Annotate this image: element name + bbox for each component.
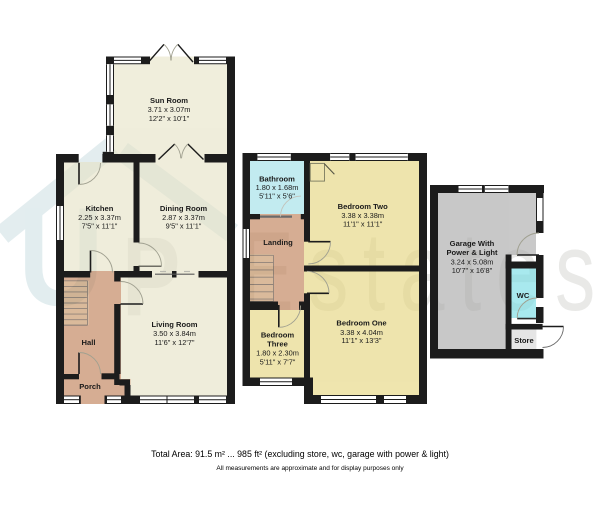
svg-text:11'1" x 13'3": 11'1" x 13'3" — [342, 336, 382, 345]
svg-text:Sun Room: Sun Room — [150, 96, 188, 105]
svg-text:5'11" x 7'7": 5'11" x 7'7" — [260, 358, 296, 367]
svg-text:3.50 x 3.84m: 3.50 x 3.84m — [153, 329, 196, 338]
svg-text:Bedroom Two: Bedroom Two — [338, 202, 388, 211]
svg-text:10'7" x 16'8": 10'7" x 16'8" — [452, 266, 493, 275]
svg-text:Bedroom: Bedroom — [261, 331, 295, 340]
svg-text:12'2" x 10'1": 12'2" x 10'1" — [149, 114, 190, 123]
svg-text:Bedroom One: Bedroom One — [336, 319, 386, 328]
svg-text:Total Area: 91.5 m² ... 985 ft: Total Area: 91.5 m² ... 985 ft² (excludi… — [151, 449, 449, 459]
svg-text:11'1" x 11'1": 11'1" x 11'1" — [343, 220, 383, 229]
svg-text:5'11" x 5'6": 5'11" x 5'6" — [259, 192, 295, 201]
svg-text:All measurements are approxima: All measurements are approximate and for… — [216, 465, 404, 472]
svg-text:Hall: Hall — [82, 338, 96, 347]
svg-text:7'5" x 11'1": 7'5" x 11'1" — [82, 222, 118, 231]
svg-text:9'5" x 11'1": 9'5" x 11'1" — [166, 222, 202, 231]
svg-text:1.80 x 2.30m: 1.80 x 2.30m — [256, 349, 299, 358]
svg-text:3.71 x 3.07m: 3.71 x 3.07m — [148, 105, 191, 114]
svg-text:11'6" x 12'7": 11'6" x 12'7" — [155, 338, 195, 347]
svg-text:Dining Room: Dining Room — [160, 204, 207, 213]
svg-text:Garage With: Garage With — [450, 239, 495, 248]
svg-text:Store: Store — [514, 336, 533, 345]
svg-text:Three: Three — [267, 340, 288, 349]
svg-text:Landing: Landing — [263, 238, 293, 247]
svg-text:Kitchen: Kitchen — [86, 204, 114, 213]
svg-text:WC: WC — [517, 291, 530, 300]
svg-text:Porch: Porch — [79, 382, 101, 391]
svg-text:Power & Light: Power & Light — [446, 248, 498, 257]
svg-text:Living Room: Living Room — [152, 320, 198, 329]
